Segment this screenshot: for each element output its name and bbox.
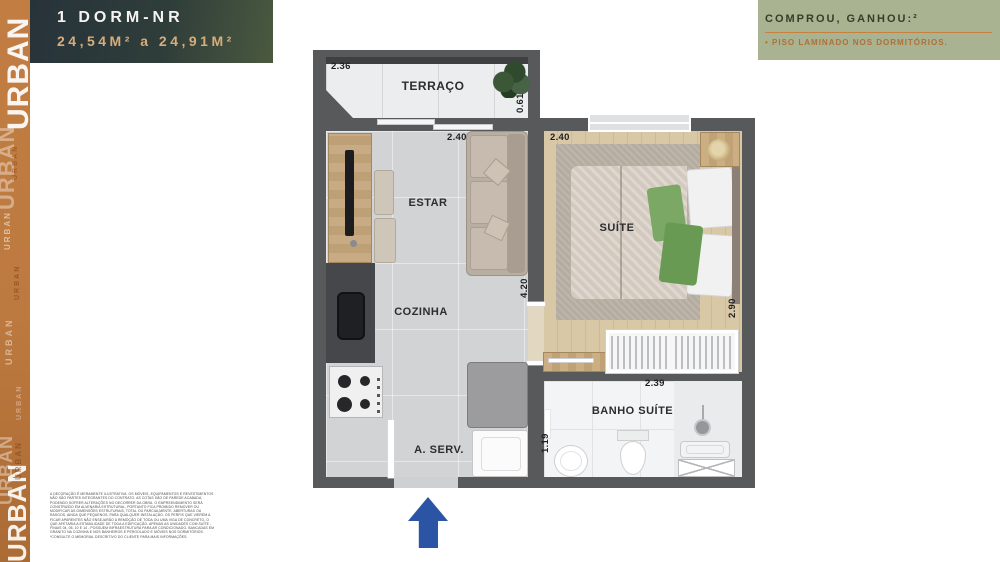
room-label-terraco: TERRAÇO — [393, 79, 473, 93]
wall-right — [742, 118, 755, 488]
dim-banho-depth: 1.19 — [540, 433, 551, 453]
brand-texture: URBAN — [12, 145, 19, 180]
shower-bench-top — [686, 445, 724, 454]
bath-sink — [554, 445, 588, 477]
suite-door-opening-floor — [528, 306, 544, 365]
plan-title-box: 1 DORM-NR 24,54M² a 24,91M² — [30, 0, 273, 63]
shower-head-icon — [696, 421, 709, 434]
room-label-suite: SUÍTE — [588, 222, 646, 234]
sofa — [466, 131, 528, 276]
bed-pillow-white — [686, 166, 736, 229]
terrace-sliding-door-panel — [433, 124, 493, 130]
entry-arrow-icon — [408, 497, 448, 548]
brand-texture: URBAN — [16, 385, 23, 420]
brand-texture: URBAN — [4, 318, 14, 366]
console-knob — [350, 240, 357, 247]
brand-texture: URBAN — [14, 265, 21, 300]
tv-icon — [345, 150, 354, 236]
washing-machine — [472, 430, 528, 477]
room-label-estar: ESTAR — [398, 197, 458, 209]
dim-banho-width: 2.39 — [645, 378, 665, 389]
promo-box: COMPROU, GANHOU:² • PISO LAMINADO NOS DO… — [758, 0, 1000, 60]
sofa-cushion — [470, 181, 508, 224]
bed-pillow-green — [658, 222, 703, 286]
wall-suite-bath — [544, 372, 742, 381]
bath-sink-basin — [560, 451, 582, 471]
fridge — [467, 362, 528, 428]
washer-door — [481, 437, 521, 471]
bed-headboard — [732, 158, 740, 304]
dim-estar-depth: 4.20 — [519, 278, 530, 298]
brand-texture: URBAN — [14, 441, 23, 480]
room-label-banho: BANHO SUÍTE — [585, 405, 680, 417]
dim-suite-depth: 2.90 — [727, 298, 738, 318]
armchair — [374, 170, 394, 215]
entry-door-leaf — [388, 420, 394, 478]
shower-box-marker — [678, 459, 735, 477]
wall-mid-upper — [528, 131, 544, 306]
window-mullion — [590, 122, 689, 124]
wall-left — [313, 50, 326, 488]
dim-terraco-width: 2.36 — [331, 61, 351, 72]
dim-terraco-depth: 0.61 — [515, 93, 526, 113]
wardrobe — [606, 330, 738, 373]
wall-mid-lower — [528, 365, 544, 477]
flyer-page: URBAN URBAN URBAN URBAN URBAN URBAN URBA… — [0, 0, 1000, 562]
room-label-cozinha: COZINHA — [392, 306, 450, 318]
wall-bottom — [313, 477, 755, 488]
wardrobe-hangers — [611, 336, 669, 369]
plan-area-range: 24,54M² a 24,91M² — [57, 33, 235, 49]
plan-title: 1 DORM-NR — [57, 9, 184, 27]
room-label-aserv: A. SERV. — [413, 444, 465, 456]
sofa-backrest — [507, 134, 525, 273]
brand-sidebar: URBAN URBAN URBAN URBAN URBAN URBAN URBA… — [0, 0, 30, 562]
table-lamp-icon — [708, 139, 730, 161]
burner — [360, 399, 370, 409]
dim-estar-width: 2.40 — [447, 132, 467, 143]
plant-icon — [492, 58, 530, 98]
suite-door-leaf — [548, 358, 594, 363]
brand-logo: URBAN — [2, 17, 30, 130]
promo-divider — [765, 32, 992, 33]
terrace-sliding-door-panel — [377, 119, 435, 125]
promo-title: COMPROU, GANHOU:² — [765, 13, 919, 25]
suite-pocket-door — [543, 352, 606, 372]
burner — [337, 397, 352, 412]
suite-window — [588, 113, 691, 132]
toilet-tank — [617, 430, 649, 441]
promo-item: • PISO LAMINADO NOS DORMITÓRIOS. — [765, 38, 948, 47]
armchair — [374, 218, 396, 263]
brand-texture: URBAN — [3, 211, 12, 250]
burner — [338, 375, 351, 388]
kitchen-sink — [337, 292, 365, 340]
entry-door-opening — [394, 477, 458, 488]
burner — [360, 376, 370, 386]
shower-bench — [680, 441, 730, 458]
stove-knobs — [377, 373, 380, 413]
legal-disclaimer: A DECORAÇÃO É MERAMENTE ILUSTRATIVA. OS … — [50, 492, 216, 539]
wardrobe-hangers — [675, 336, 733, 369]
stove — [329, 366, 383, 418]
dim-suite-width: 2.40 — [550, 132, 570, 143]
door-jamb — [527, 302, 545, 306]
